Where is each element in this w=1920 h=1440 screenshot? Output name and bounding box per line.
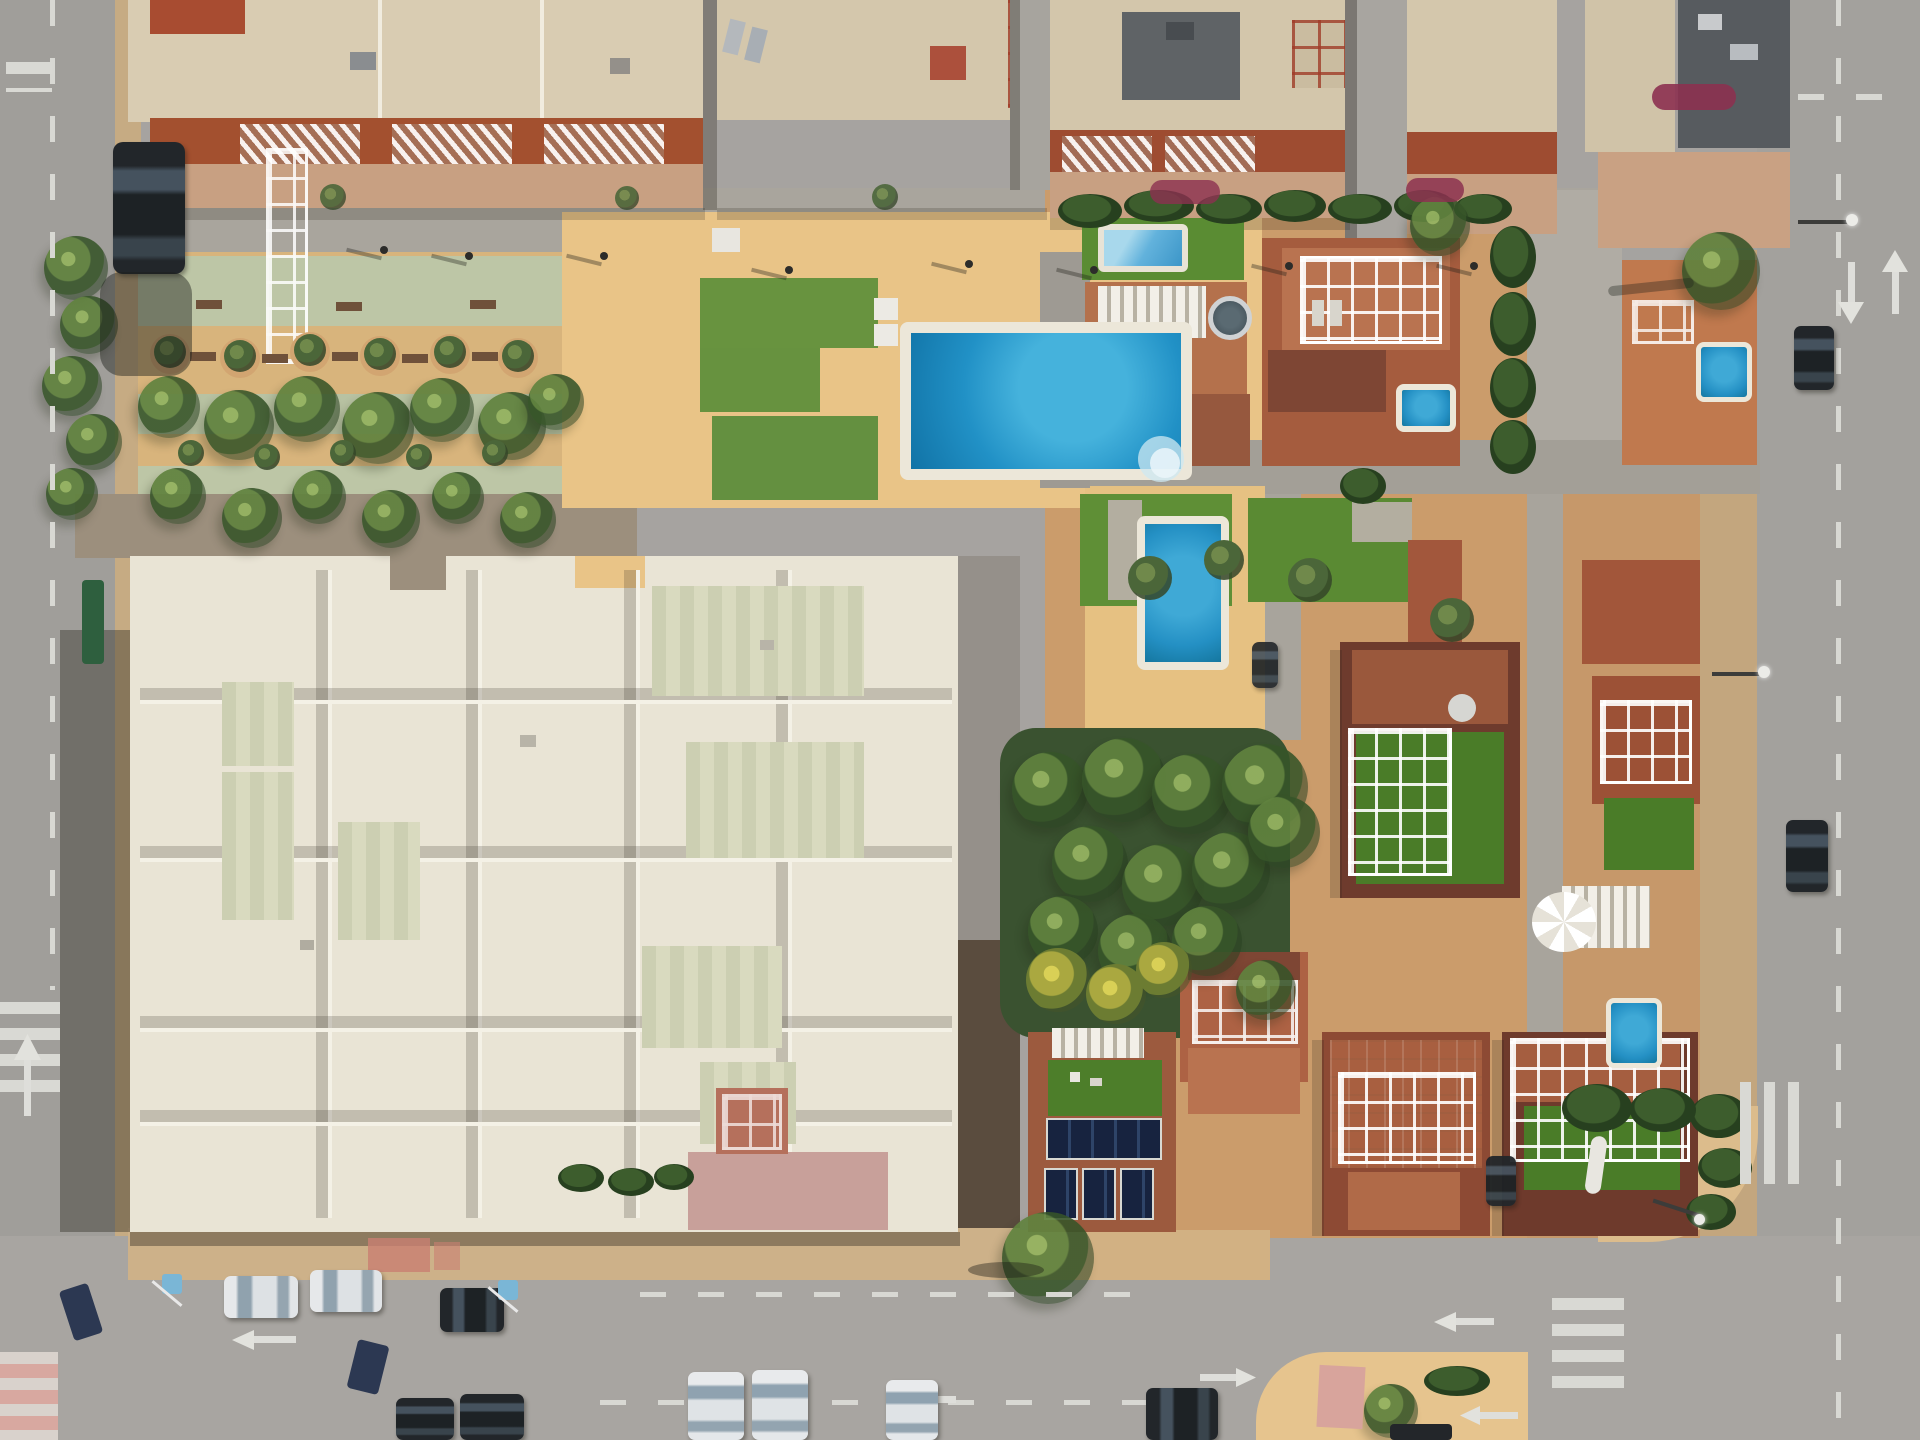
banner-flag (346, 1339, 389, 1395)
street-lamp (965, 260, 973, 268)
aerial-neighborhood-photo (0, 0, 1920, 1440)
street-lamp (785, 266, 793, 274)
lamp-shadow (751, 268, 787, 281)
lamp-light (1846, 214, 1858, 226)
street-lamp (1285, 262, 1293, 270)
street-lamp (1090, 266, 1098, 274)
lamp-arm (1798, 220, 1850, 224)
lamp-shadow (431, 254, 467, 267)
street-lamp (600, 252, 608, 260)
lamp-shadow (566, 254, 602, 267)
street-lamp (380, 246, 388, 254)
lamp-shadow (931, 262, 967, 275)
street-lamp (465, 252, 473, 260)
details-layer (0, 0, 1920, 1440)
lamp-light (1694, 1214, 1705, 1225)
lamp-shadow (1251, 264, 1287, 277)
lamp-shadow (346, 248, 382, 261)
lamp-light (1758, 666, 1770, 678)
lamp-arm (1653, 1199, 1700, 1218)
lamp-shadow (1436, 264, 1472, 277)
lamp-shadow (1056, 268, 1092, 281)
lamp-arm (1712, 672, 1764, 676)
banner-flag (59, 1283, 104, 1342)
street-lamp (1470, 262, 1478, 270)
